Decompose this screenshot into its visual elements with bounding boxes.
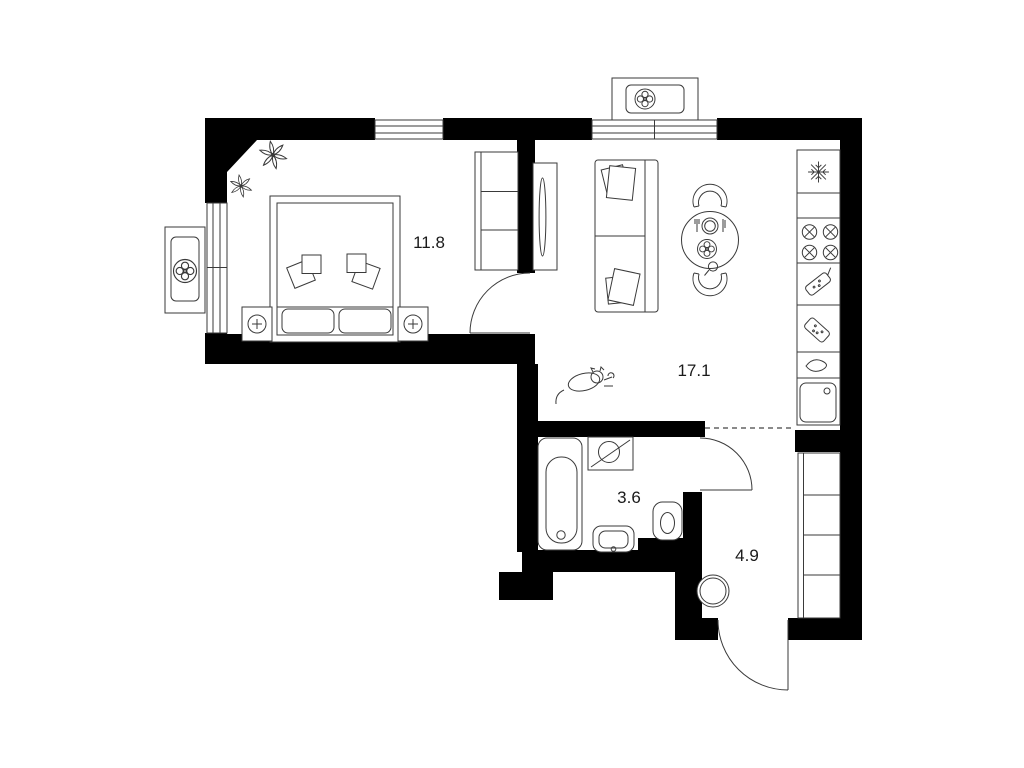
hallway-wardrobe bbox=[798, 453, 840, 618]
dining-table-set bbox=[682, 184, 739, 295]
chair-bottom bbox=[693, 273, 727, 296]
living-top-window bbox=[592, 120, 717, 139]
bedroom-top-window bbox=[375, 120, 443, 139]
room-label-bedroom: 11.8 bbox=[413, 233, 445, 252]
bathtub bbox=[538, 438, 582, 550]
door-swing-arc bbox=[718, 620, 788, 690]
tv-unit bbox=[533, 163, 557, 270]
ac-unit-top bbox=[612, 78, 698, 120]
kitchen-sink bbox=[800, 383, 836, 422]
fridge-snowflake-icon bbox=[808, 162, 829, 183]
cat-sketch bbox=[556, 367, 614, 404]
room-labels: 11.8 17.1 3.6 4.9 bbox=[413, 233, 759, 565]
washing-machine-icon bbox=[588, 437, 633, 470]
floor-plan-svg: 11.8 17.1 3.6 4.9 bbox=[0, 0, 1024, 768]
bedroom-door bbox=[470, 273, 530, 333]
bathroom-sink bbox=[593, 526, 634, 552]
kitchen-counter-column bbox=[797, 150, 840, 425]
plant-sketch-1 bbox=[256, 138, 290, 171]
plant-sketch-2 bbox=[225, 171, 256, 202]
ac-unit-left bbox=[165, 227, 205, 313]
room-label-bathroom: 3.6 bbox=[617, 488, 641, 507]
sofa bbox=[595, 160, 658, 312]
door-swing-arc bbox=[470, 273, 530, 333]
toilet bbox=[653, 502, 682, 540]
bedroom-left-window bbox=[207, 203, 227, 333]
nightstand-right bbox=[398, 307, 428, 341]
entrance-door bbox=[718, 620, 788, 690]
chair-top bbox=[693, 184, 727, 207]
bathroom-door bbox=[700, 438, 752, 490]
door-swing-arc bbox=[700, 438, 752, 490]
nightstand-left bbox=[242, 307, 272, 341]
room-label-hallway: 4.9 bbox=[735, 546, 759, 565]
room-label-living-kitchen: 17.1 bbox=[677, 361, 710, 380]
stool bbox=[697, 575, 729, 607]
floor-plan-page: 11.8 17.1 3.6 4.9 bbox=[0, 0, 1024, 768]
bedroom-wardrobe bbox=[475, 152, 518, 270]
double-bed bbox=[270, 196, 400, 342]
